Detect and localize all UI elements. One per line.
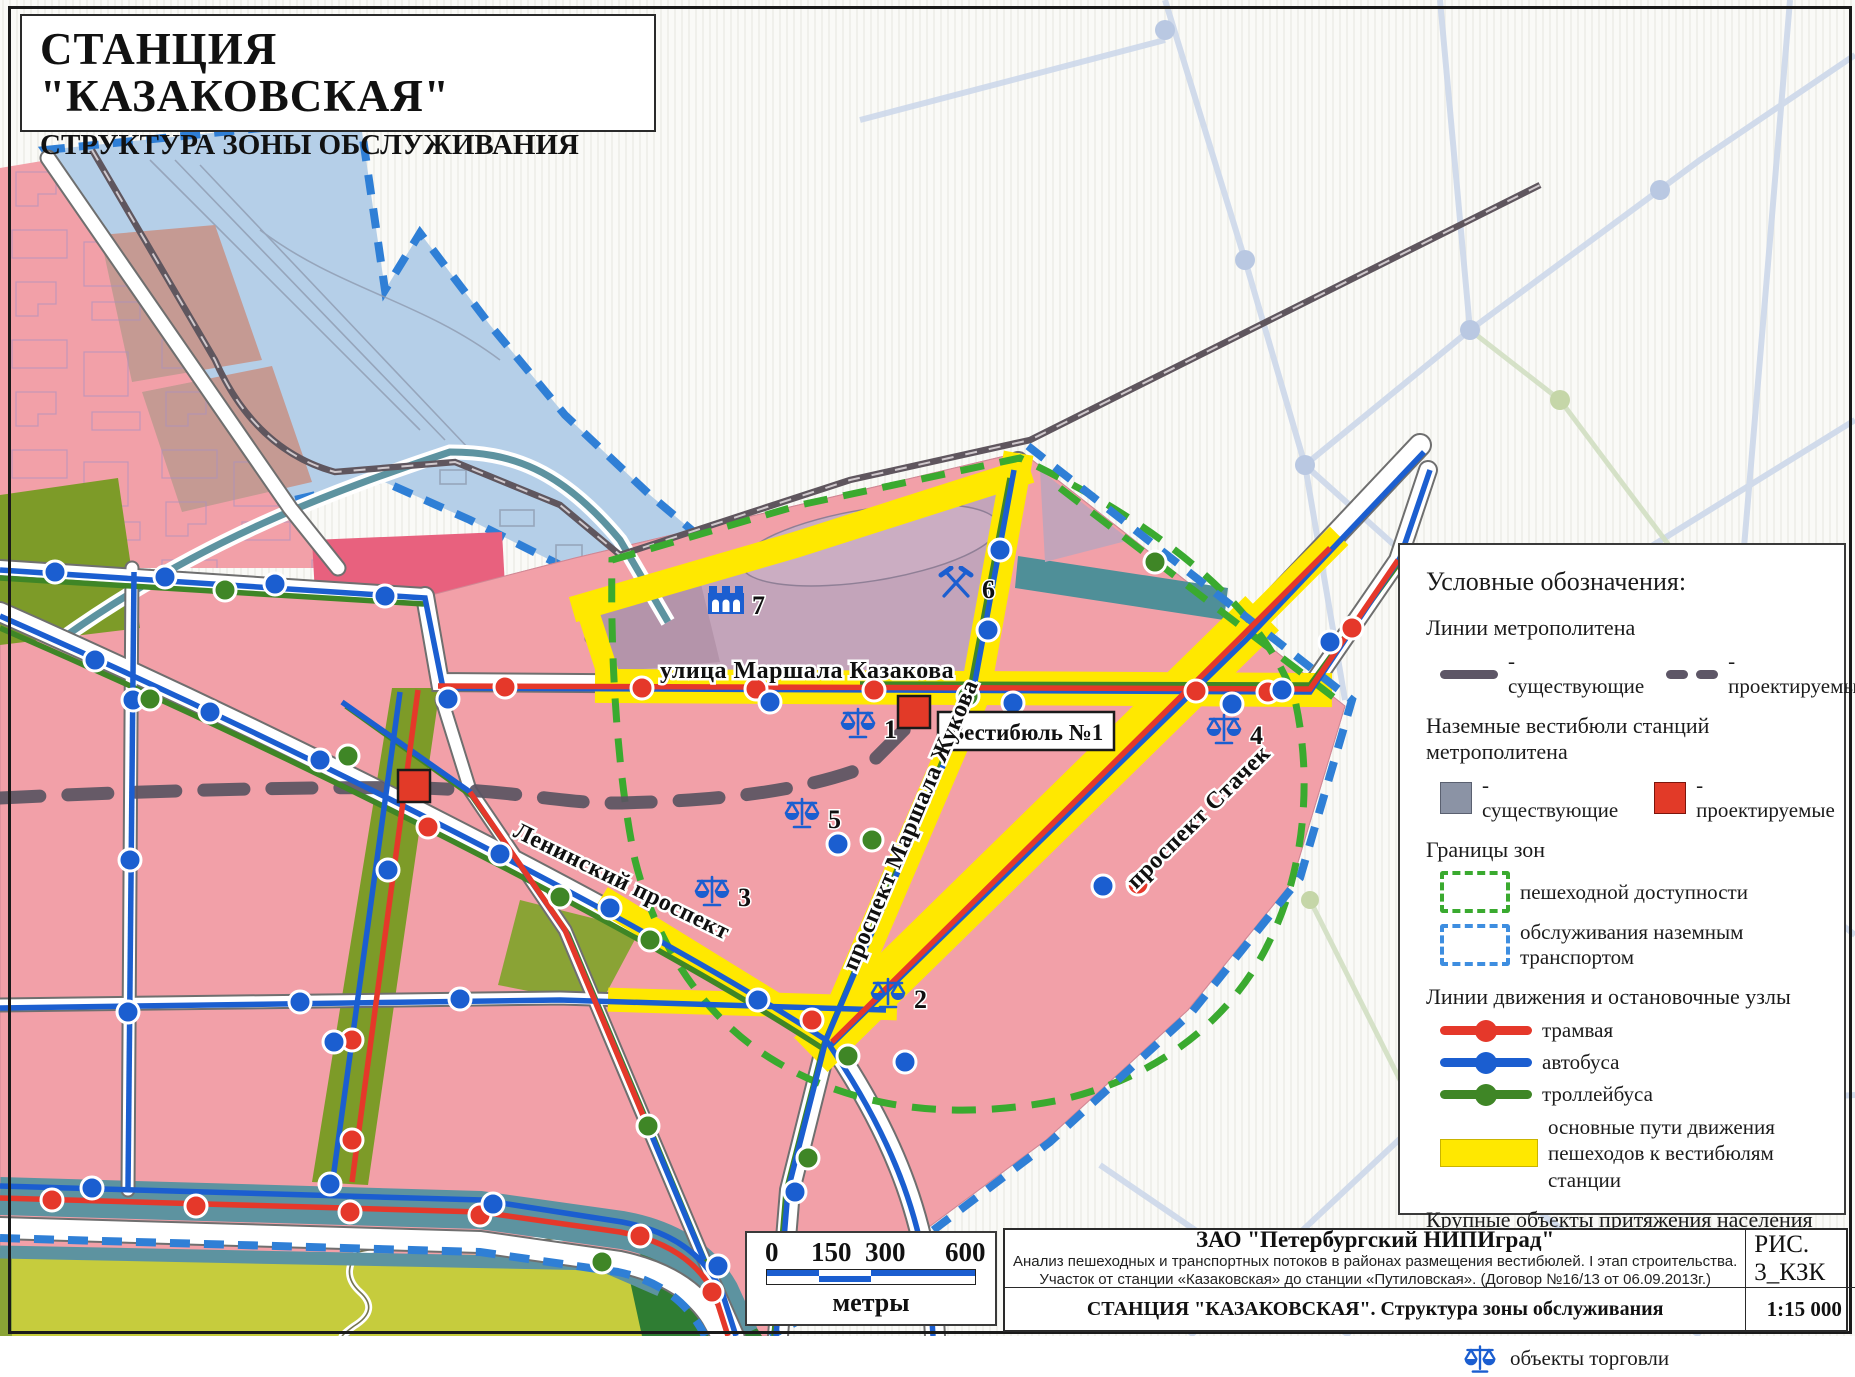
pedestrian-zone-swatch: [1440, 871, 1510, 913]
legend-section-vestibules: Наземные вестибюли станций метрополитена: [1426, 713, 1824, 765]
legend-panel: Условные обозначения: Линии метрополитен…: [1398, 543, 1846, 1215]
legend-section-zones: Границы зон: [1426, 837, 1824, 863]
bus-line-swatch: [1440, 1058, 1532, 1067]
trade-legend-icon: [1460, 1341, 1500, 1377]
transport-zone-swatch: [1440, 924, 1510, 966]
company-name: ЗАО "Петербургский НИПИград": [1196, 1228, 1554, 1252]
poi-4-number: 4: [1250, 721, 1263, 750]
footer-table: ЗАО "Петербургский НИПИград" Анализ пеше…: [1003, 1228, 1848, 1332]
legend-section-transit: Линии движения и остановочные узлы: [1426, 984, 1824, 1010]
vestibule-projected-label: - проектируемые: [1696, 773, 1835, 823]
vestibule-existing-swatch: [1440, 782, 1472, 814]
poi-1-number: 1: [884, 715, 897, 744]
street-label-kazakova: улица Маршала Казакова: [660, 658, 954, 684]
scale-bar-graphic: [766, 1269, 976, 1285]
svg-text:Вестибюль №1: Вестибюль №1: [949, 720, 1104, 745]
trolleybus-line-swatch: [1440, 1090, 1532, 1099]
vestibule-existing-label: - существующие: [1482, 773, 1618, 823]
transport-zone-label: обслуживания наземным транспортом: [1520, 920, 1824, 970]
figure-number: РИС. 3_КЗК: [1754, 1231, 1854, 1287]
figure-number-cell: РИС. 3_КЗК: [1746, 1230, 1855, 1288]
footer-line-1: Анализ пешеходных и транспортных потоков…: [1013, 1253, 1737, 1271]
scale-tick-600: 600: [945, 1237, 986, 1268]
footer-subtitle-cell: СТАНЦИЯ "КАЗАКОВСКАЯ". Структура зоны об…: [1005, 1288, 1746, 1330]
metro-existing-label: - существующие: [1508, 649, 1644, 699]
scale-tick-300: 300: [865, 1237, 906, 1268]
poi-6-number: 6: [982, 575, 995, 604]
poi-7-number: 7: [752, 591, 765, 620]
pedestrian-zone-label: пешеходной доступности: [1520, 880, 1748, 905]
vestibule-1-marker: [898, 696, 930, 728]
pedestrian-path-label: основные пути движения пешеходов к вести…: [1548, 1114, 1824, 1193]
scale-unit: метры: [759, 1288, 983, 1318]
legend-heading: Условные обозначения:: [1426, 567, 1824, 597]
poi-2-number: 2: [914, 985, 927, 1014]
map-sheet: Вестибюль №1 улица Маршала Казакова Лени…: [0, 0, 1855, 1336]
map-subtitle: СТРУКТУРА ЗОНЫ ОБСЛУЖИВАНИЯ: [40, 129, 636, 162]
metro-existing-swatch: [1440, 670, 1498, 679]
legend-section-metro: Линии метрополитена: [1426, 615, 1824, 641]
trade-label: объекты торговли: [1510, 1346, 1669, 1371]
scale-tick-150: 150: [811, 1237, 852, 1268]
sheet-subtitle: СТАНЦИЯ "КАЗАКОВСКАЯ". Структура зоны об…: [1087, 1298, 1664, 1321]
scale-tick-0: 0: [765, 1237, 779, 1268]
footer-line-2: Участок от станции «Казаковская» до стан…: [1039, 1271, 1711, 1289]
tram-label: трамвая: [1542, 1018, 1613, 1043]
footer-main-cell: ЗАО "Петербургский НИПИград" Анализ пеше…: [1005, 1230, 1746, 1288]
scale-bar: 0 150 300 600 метры: [745, 1231, 997, 1326]
metro-projected-swatch: [1666, 670, 1718, 679]
map-scale-cell: 1:15 000: [1746, 1288, 1855, 1330]
map-scale: 1:15 000: [1767, 1297, 1842, 1322]
pedestrian-path-swatch: [1440, 1139, 1538, 1167]
poi-5-number: 5: [828, 805, 841, 834]
vestibule-2-marker: [398, 770, 430, 802]
trolleybus-label: троллейбуса: [1542, 1082, 1653, 1107]
title-block: СТАНЦИЯ "КАЗАКОВСКАЯ" СТРУКТУРА ЗОНЫ ОБС…: [20, 14, 656, 132]
map-title: СТАНЦИЯ "КАЗАКОВСКАЯ": [40, 26, 636, 121]
tram-line-swatch: [1440, 1026, 1532, 1035]
poi-3-number: 3: [738, 883, 751, 912]
vestibule-projected-swatch: [1654, 782, 1686, 814]
bus-label: автобуса: [1542, 1050, 1619, 1075]
metro-projected-label: - проектируемые: [1728, 649, 1855, 699]
